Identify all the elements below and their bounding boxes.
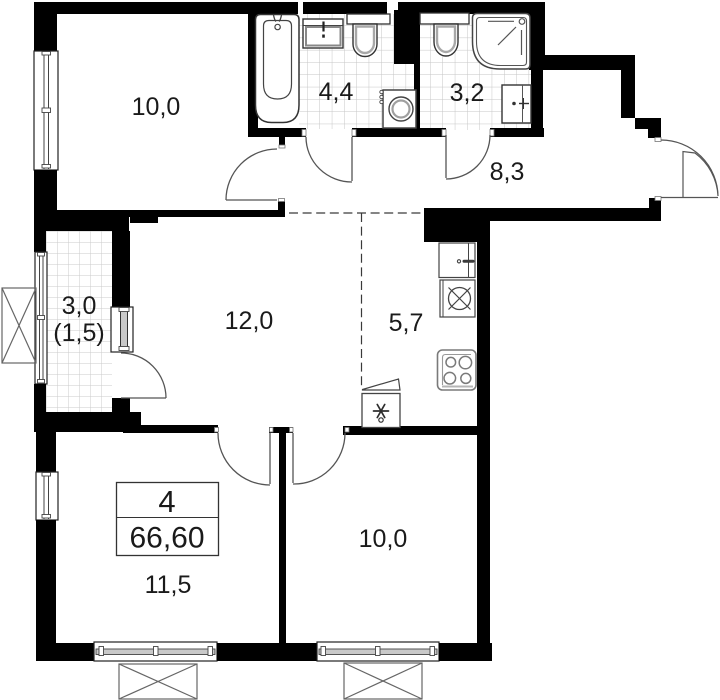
svg-text:12,0: 12,0 bbox=[225, 307, 274, 335]
svg-text:4,4: 4,4 bbox=[319, 78, 354, 106]
svg-text:11,5: 11,5 bbox=[145, 571, 192, 599]
svg-text:8,3: 8,3 bbox=[490, 158, 525, 186]
svg-text:4: 4 bbox=[158, 484, 175, 519]
svg-text:66,60: 66,60 bbox=[129, 522, 204, 555]
svg-text:10,0: 10,0 bbox=[359, 525, 408, 553]
svg-text:(1,5): (1,5) bbox=[53, 319, 104, 347]
svg-text:5,7: 5,7 bbox=[389, 309, 424, 337]
svg-text:10,0: 10,0 bbox=[132, 93, 181, 121]
svg-text:3,2: 3,2 bbox=[450, 79, 485, 107]
svg-text:3,0: 3,0 bbox=[62, 292, 97, 320]
